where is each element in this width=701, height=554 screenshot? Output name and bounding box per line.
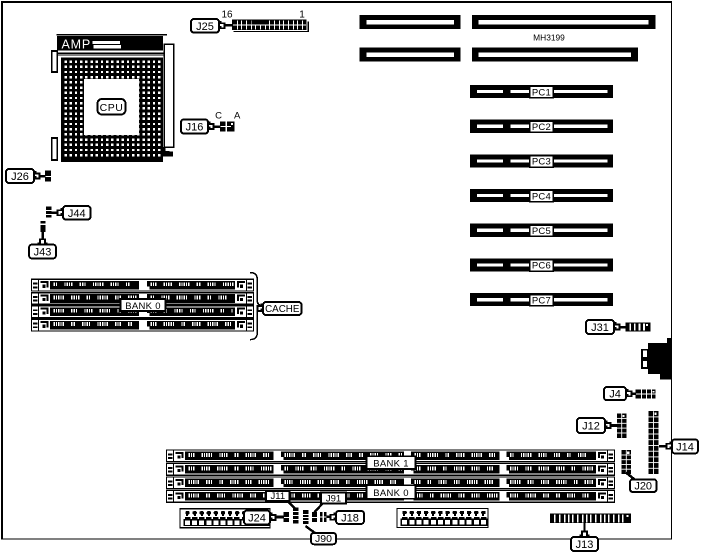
- svg-text:J91: J91: [326, 494, 341, 505]
- svg-text:J14: J14: [676, 441, 694, 453]
- svg-text:J24: J24: [248, 512, 266, 524]
- svg-text:J31: J31: [591, 322, 609, 334]
- svg-text:PC7: PC7: [532, 295, 551, 306]
- svg-text:J44: J44: [68, 208, 86, 220]
- svg-text:J12: J12: [582, 420, 600, 432]
- svg-text:PC5: PC5: [532, 226, 551, 237]
- svg-text:MH3199: MH3199: [533, 33, 565, 43]
- svg-text:BANK 0: BANK 0: [125, 301, 161, 312]
- svg-text:PC2: PC2: [532, 122, 551, 133]
- svg-text:PC1: PC1: [532, 87, 551, 98]
- svg-text:1: 1: [299, 9, 305, 20]
- svg-text:PC4: PC4: [532, 191, 551, 202]
- svg-text:J18: J18: [341, 512, 359, 524]
- svg-text:J26: J26: [11, 171, 29, 183]
- svg-text:PC6: PC6: [532, 261, 551, 272]
- svg-text:J13: J13: [576, 539, 594, 551]
- svg-text:J16: J16: [186, 121, 204, 133]
- svg-text:CPU: CPU: [100, 102, 124, 114]
- svg-text:AMP: AMP: [62, 37, 92, 51]
- svg-text:J20: J20: [634, 481, 652, 493]
- svg-text:J43: J43: [34, 246, 52, 258]
- svg-text:J11: J11: [270, 491, 285, 502]
- svg-text:BANK 0: BANK 0: [373, 488, 409, 499]
- svg-text:J4: J4: [609, 389, 621, 401]
- svg-text:J90: J90: [315, 533, 332, 545]
- svg-text:PC3: PC3: [532, 157, 551, 168]
- svg-text:BANK 1: BANK 1: [373, 459, 409, 470]
- svg-text:CACHE: CACHE: [265, 304, 300, 315]
- svg-text:16: 16: [221, 9, 233, 20]
- svg-text:J25: J25: [196, 21, 214, 33]
- svg-text:A: A: [234, 110, 241, 121]
- svg-text:C: C: [215, 110, 222, 121]
